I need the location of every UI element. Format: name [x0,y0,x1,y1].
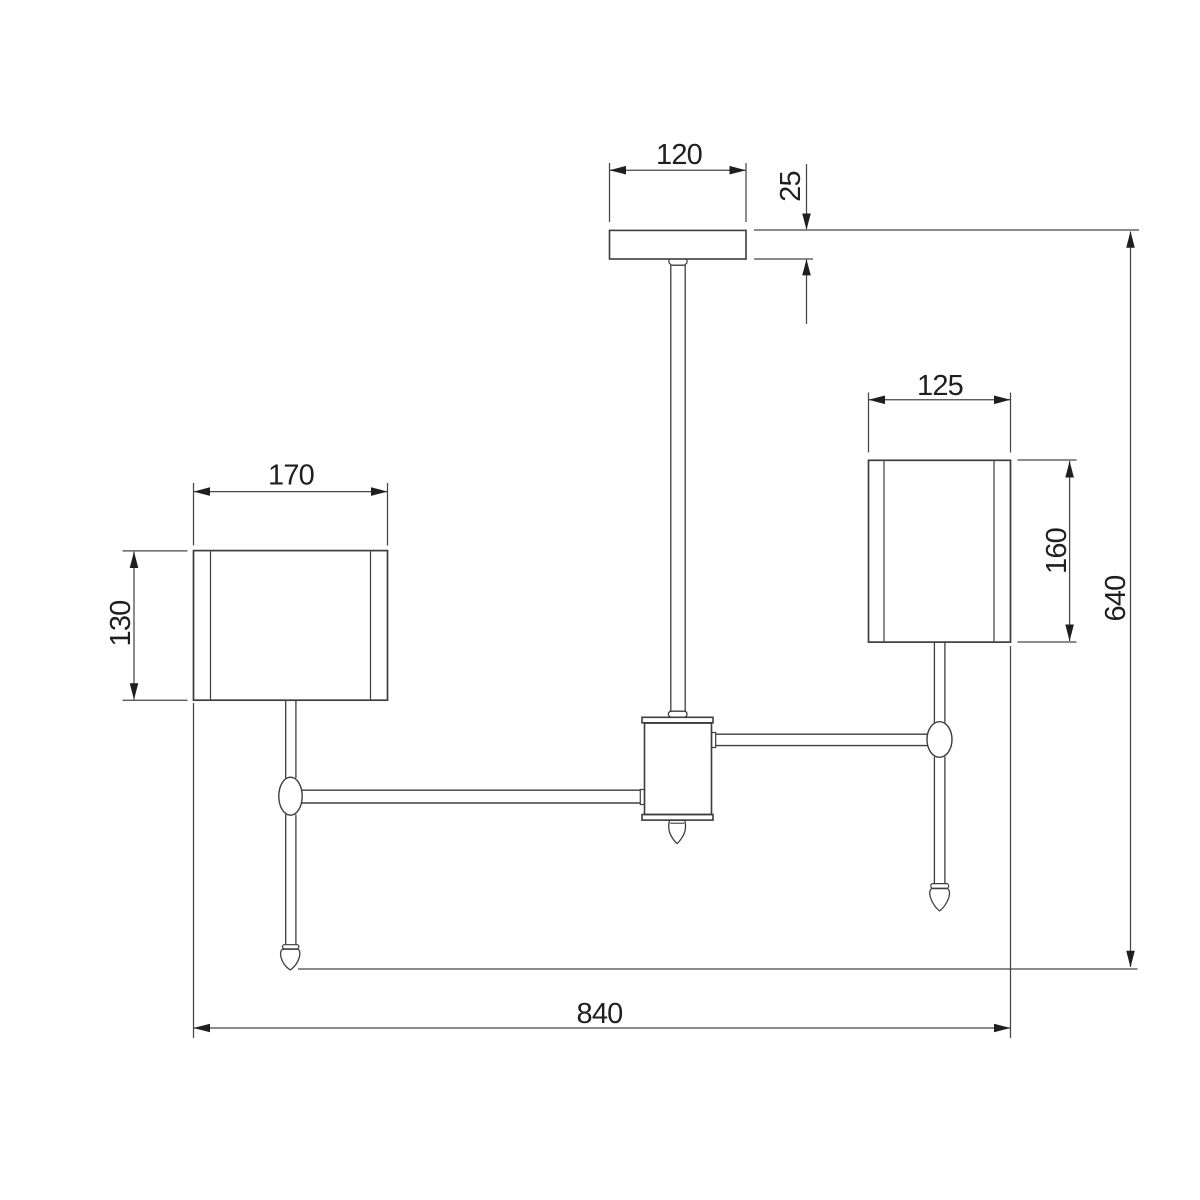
svg-text:25: 25 [775,171,807,202]
svg-text:125: 125 [917,370,963,402]
svg-text:640: 640 [1100,576,1132,622]
svg-text:130: 130 [105,601,137,647]
svg-text:840: 840 [577,998,623,1030]
svg-text:160: 160 [1041,528,1073,574]
svg-text:120: 120 [656,139,702,171]
svg-text:170: 170 [268,460,314,492]
